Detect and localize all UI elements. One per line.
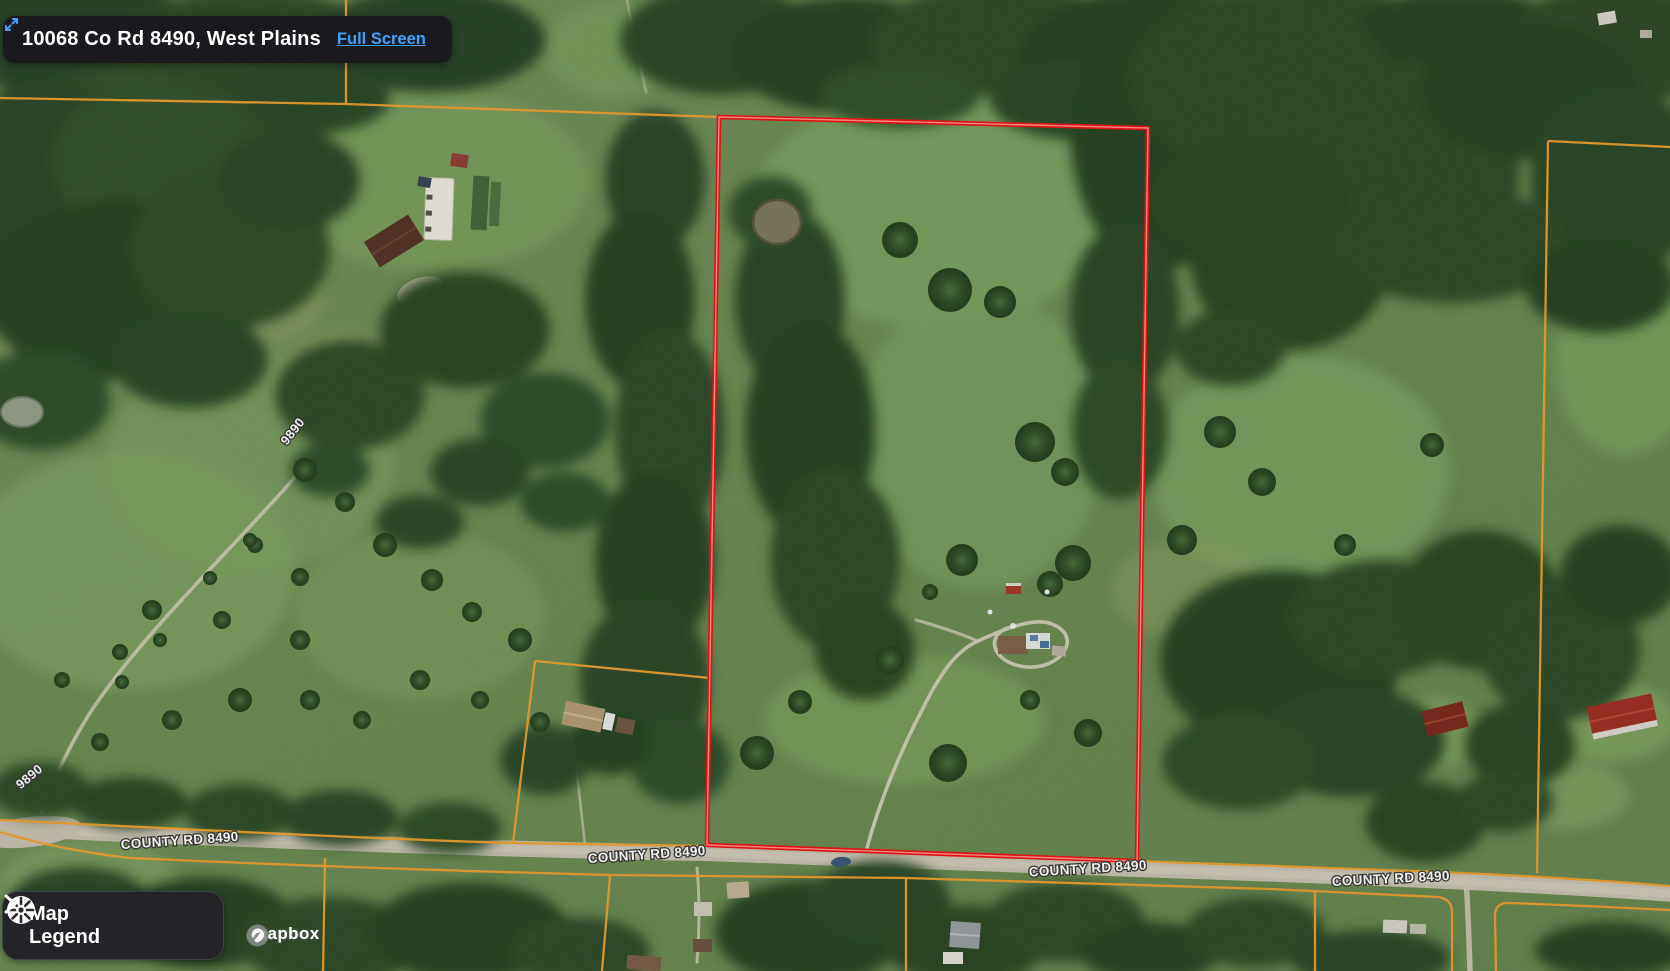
legend-label: Map Legend bbox=[29, 903, 100, 948]
address-pill: 10068 Co Rd 8490, West Plains Full Scree… bbox=[3, 16, 452, 63]
map-viewport: COUNTY RD 8490 COUNTY RD 8490 COUNTY RD … bbox=[0, 0, 1670, 971]
full-screen-link[interactable]: Full Screen bbox=[337, 30, 433, 49]
mapbox-attribution[interactable]: mapbox bbox=[246, 924, 320, 944]
imagery-noise bbox=[0, 0, 1670, 971]
map-legend-button[interactable]: Map Legend bbox=[2, 891, 224, 960]
address-title: 10068 Co Rd 8490, West Plains bbox=[22, 28, 321, 51]
full-screen-label: Full Screen bbox=[337, 30, 426, 49]
